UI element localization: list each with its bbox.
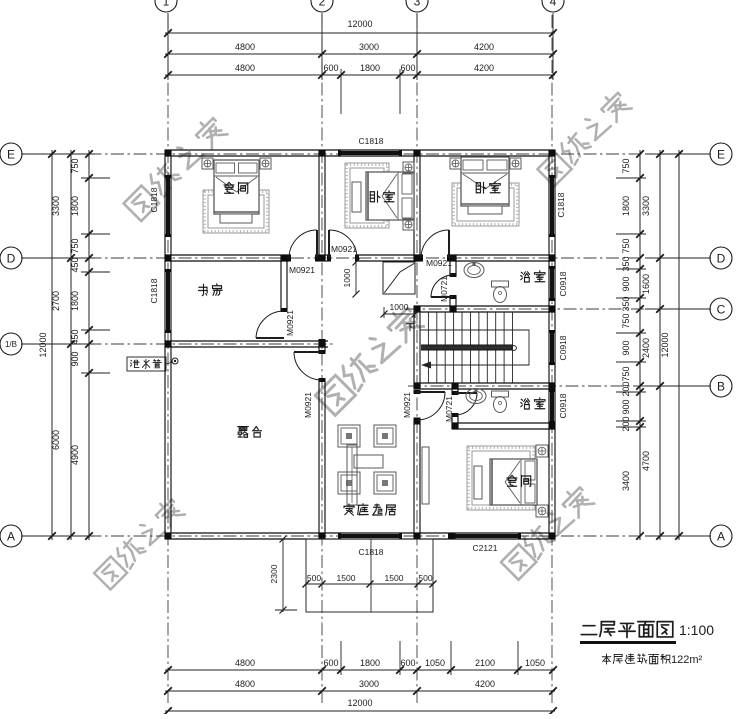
svg-text:900: 900 [621,276,631,291]
svg-text:1600: 1600 [641,274,651,294]
svg-text:750: 750 [70,238,80,253]
svg-text:350: 350 [621,256,631,271]
svg-text:600: 600 [400,658,415,668]
svg-text:12000: 12000 [38,332,48,357]
svg-text:122m²: 122m² [671,654,703,666]
svg-text:12000: 12000 [347,698,372,708]
svg-text:A: A [7,529,15,543]
svg-text:1050: 1050 [525,658,545,668]
svg-text:1000: 1000 [342,268,352,287]
svg-text:500: 500 [418,573,432,583]
svg-text:200: 200 [621,381,631,396]
svg-text:750: 750 [621,238,631,253]
svg-text:500: 500 [307,573,321,583]
svg-text:2400: 2400 [641,338,651,358]
svg-text:200: 200 [621,416,631,431]
svg-text:3000: 3000 [359,679,379,689]
svg-text:4200: 4200 [475,679,495,689]
svg-text:1: 1 [163,0,170,8]
svg-text:D: D [717,251,726,265]
svg-text:3300: 3300 [641,196,651,216]
svg-text:A: A [717,529,725,543]
svg-text:M0921: M0921 [402,392,412,418]
svg-text:M0921: M0921 [289,265,315,275]
svg-text:1800: 1800 [70,291,80,311]
svg-text:900: 900 [70,351,80,366]
svg-text:450: 450 [70,257,80,272]
svg-text:3000: 3000 [359,42,379,52]
svg-text:600: 600 [400,63,415,73]
svg-text:350: 350 [621,296,631,311]
svg-text:M0921: M0921 [331,244,357,254]
svg-text:M0921: M0921 [285,310,295,336]
svg-text:1800: 1800 [360,63,380,73]
svg-text:4: 4 [550,0,557,8]
svg-text:4800: 4800 [235,679,255,689]
svg-text:450: 450 [70,329,80,344]
svg-text:1000: 1000 [390,302,409,312]
svg-text:600: 600 [323,658,338,668]
svg-text:750: 750 [621,158,631,173]
svg-text:4200: 4200 [474,63,494,73]
svg-text:C: C [717,302,726,316]
svg-text:1/B: 1/B [5,340,17,349]
svg-text:C1818: C1818 [358,136,383,146]
svg-text:M0921: M0921 [426,258,452,268]
svg-text:600: 600 [323,63,338,73]
svg-text:750: 750 [621,313,631,328]
svg-text:2100: 2100 [475,658,495,668]
svg-text:1:100: 1:100 [679,622,714,638]
svg-text:3400: 3400 [621,471,631,491]
svg-text:C0918: C0918 [558,271,568,296]
svg-text:E: E [717,147,725,161]
svg-text:1500: 1500 [337,573,356,583]
svg-text:12000: 12000 [347,19,372,29]
svg-text:M0721: M0721 [439,276,449,302]
svg-text:1500: 1500 [385,573,404,583]
svg-text:E: E [7,147,15,161]
svg-text:900: 900 [621,399,631,414]
svg-text:D: D [7,251,16,265]
svg-text:C2121: C2121 [472,543,497,553]
svg-text:1800: 1800 [621,196,631,216]
svg-text:750: 750 [621,366,631,381]
svg-text:2: 2 [319,0,326,8]
svg-text:C1818: C1818 [149,187,159,212]
svg-text:6000: 6000 [51,430,61,450]
svg-text:2300: 2300 [269,564,279,583]
svg-text:2700: 2700 [51,291,61,311]
svg-text:C1818: C1818 [556,192,566,217]
svg-text:C0918: C0918 [558,335,568,360]
svg-text:750: 750 [70,158,80,173]
svg-text:4700: 4700 [641,451,651,471]
svg-text:M0921: M0921 [303,392,313,418]
svg-text:C1818: C1818 [149,278,159,303]
svg-text:C0918: C0918 [558,393,568,418]
svg-text:4800: 4800 [235,63,255,73]
svg-text:3300: 3300 [51,196,61,216]
svg-text:3: 3 [414,0,421,8]
svg-text:C1818: C1818 [358,547,383,557]
svg-text:900: 900 [621,340,631,355]
svg-text:1050: 1050 [425,658,445,668]
svg-text:1800: 1800 [70,196,80,216]
svg-text:4800: 4800 [235,42,255,52]
svg-text:M0721: M0721 [444,396,454,422]
svg-text:4800: 4800 [235,658,255,668]
svg-text:4900: 4900 [70,445,80,465]
svg-text:12000: 12000 [660,332,670,357]
svg-text:B: B [717,379,725,393]
svg-text:4200: 4200 [474,42,494,52]
svg-text:1800: 1800 [360,658,380,668]
